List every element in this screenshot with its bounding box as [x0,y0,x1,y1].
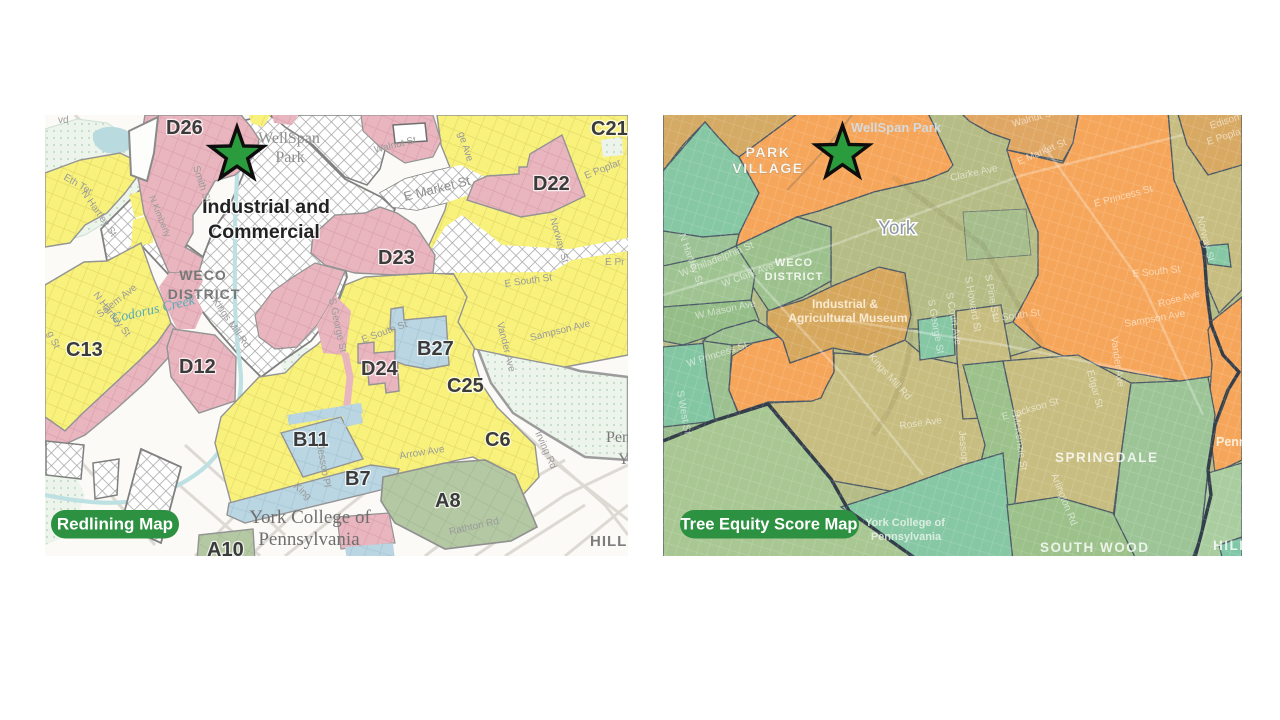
svg-text:Redlining Map: Redlining Map [57,515,173,534]
svg-text:WellSpan: WellSpan [258,130,320,147]
svg-text:C13: C13 [66,339,103,361]
svg-text:D23: D23 [378,247,415,269]
svg-text:A10: A10 [207,539,244,556]
svg-text:C6: C6 [485,429,511,451]
svg-text:DISTRICT: DISTRICT [765,271,824,283]
svg-text:A8: A8 [435,490,461,512]
svg-text:vd: vd [58,115,69,126]
svg-text:Park: Park [275,149,304,166]
svg-text:SOUTH WOOD: SOUTH WOOD [1040,540,1150,555]
svg-text:Commercial: Commercial [208,221,320,243]
svg-text:C25: C25 [447,375,484,397]
svg-text:VILLAGE: VILLAGE [732,160,803,176]
svg-text:HILL: HILL [1213,538,1242,553]
svg-text:Penn: Penn [1216,435,1242,449]
svg-text:WECO: WECO [775,257,813,269]
svg-text:E Pr: E Pr [605,257,625,268]
svg-text:D12: D12 [179,356,216,378]
svg-text:SPRINGDALE: SPRINGDALE [1055,450,1159,465]
svg-text:Agricultural Museum: Agricultural Museum [788,311,907,325]
svg-text:Industrial and: Industrial and [202,196,330,218]
svg-text:York: York [878,218,916,239]
svg-text:Tree Equity Score Map: Tree Equity Score Map [681,516,858,534]
svg-text:Pennsylvania: Pennsylvania [871,531,942,543]
svg-text:B27: B27 [417,338,454,360]
svg-text:B7: B7 [345,468,371,490]
svg-text:HILLC: HILLC [590,533,628,550]
svg-text:Penn: Penn [606,429,628,446]
svg-text:WellSpan Park: WellSpan Park [851,120,942,135]
svg-text:Y: Y [618,451,628,468]
svg-text:Pennsylvania: Pennsylvania [258,529,360,550]
svg-text:D26: D26 [166,117,203,139]
svg-text:York College of: York College of [249,507,371,528]
svg-text:D22: D22 [533,173,570,195]
svg-text:C21: C21 [591,118,628,140]
svg-text:York College of: York College of [865,517,945,529]
svg-text:D24: D24 [361,358,399,380]
svg-text:WECO: WECO [179,267,227,283]
svg-text:PARK: PARK [746,144,791,160]
svg-text:Industrial &: Industrial & [812,297,878,311]
